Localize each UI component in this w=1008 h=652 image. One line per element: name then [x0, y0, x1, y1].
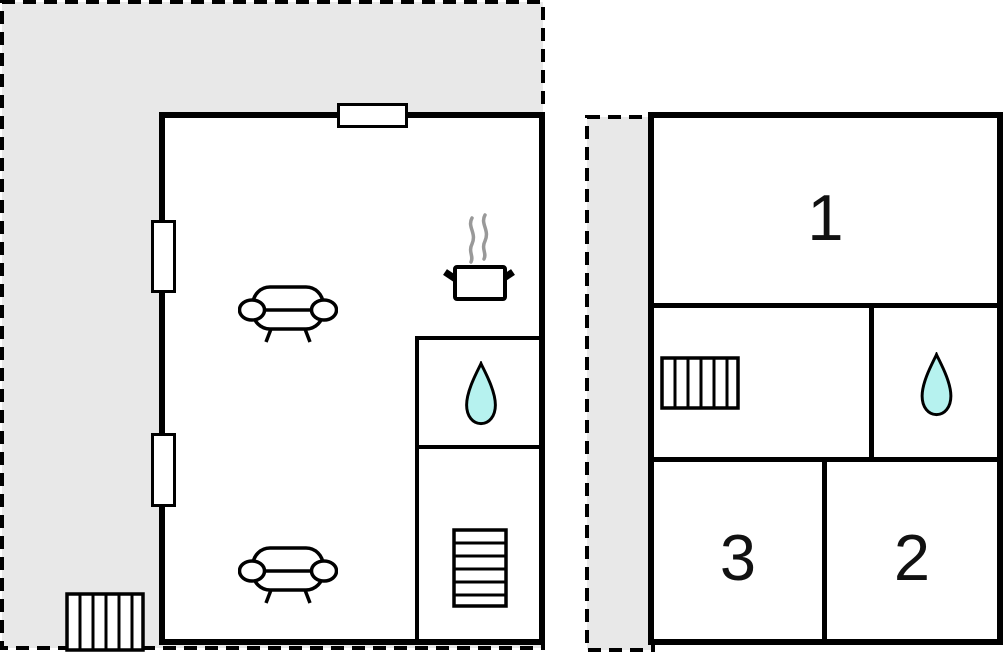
staircase-icon [452, 528, 508, 608]
wall-divider-bathroom-bottom [415, 445, 539, 449]
stove-pot-icon [438, 210, 520, 302]
window-top [337, 103, 408, 128]
steam-icon [471, 215, 487, 262]
upper-terrace-strip [585, 115, 655, 652]
terrace-steps-icon [65, 592, 145, 652]
sofa-icon [238, 544, 338, 606]
water-drop-icon [464, 361, 498, 427]
room-3-label: 3 [654, 462, 822, 639]
wall-divider-landing-bathroom [869, 303, 874, 462]
sofa-icon [238, 283, 338, 345]
floor-plan: 1 3 2 [0, 0, 1008, 652]
wall-divider-room1 [652, 303, 1000, 308]
wall-divider-bathroom-top [415, 336, 539, 340]
water-drop-icon [918, 352, 955, 418]
landing-steps-icon [660, 356, 740, 410]
room-1-label: 1 [654, 118, 997, 303]
window-left-upper [151, 220, 176, 293]
room-2-label: 2 [827, 462, 997, 639]
wall-divider-column [415, 336, 419, 639]
window-left-lower [151, 433, 176, 507]
